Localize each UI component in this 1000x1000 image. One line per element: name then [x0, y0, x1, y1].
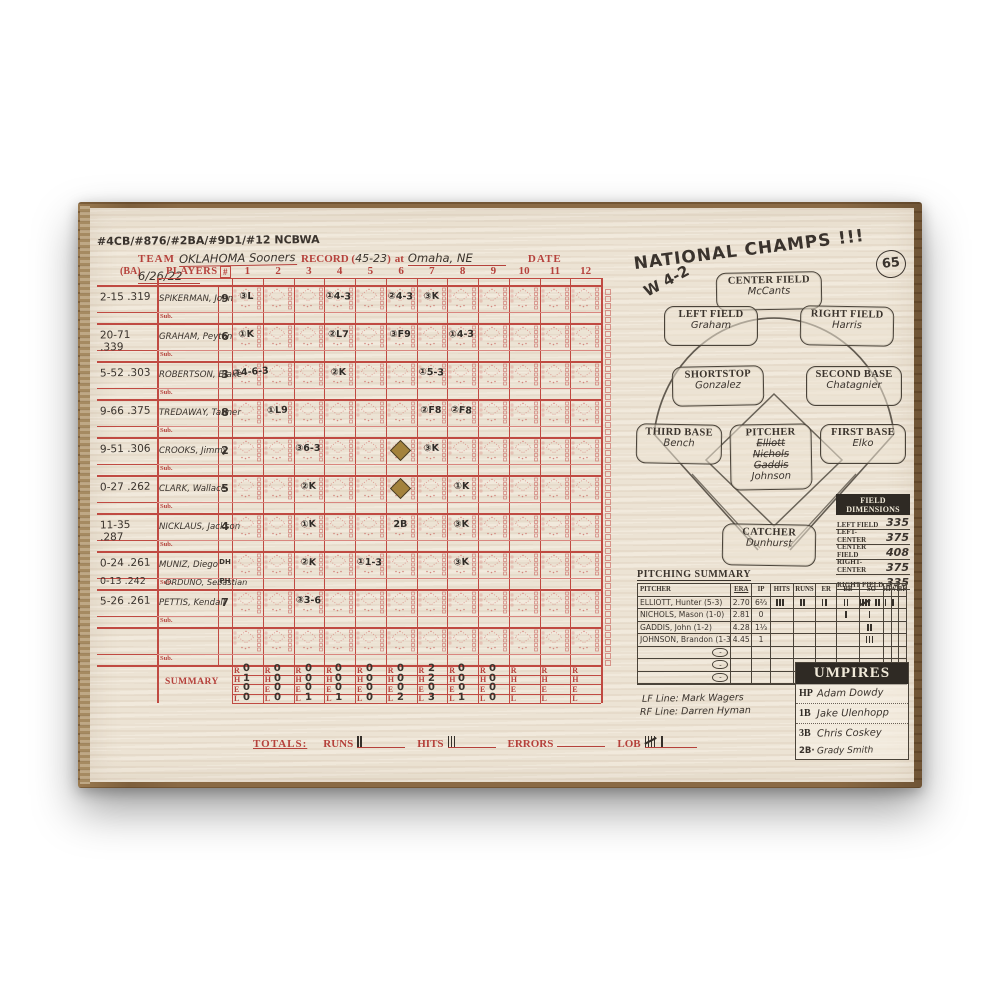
cell-diamond-pattern [418, 628, 447, 653]
inning-header: 11 [540, 265, 571, 277]
cell-diamond-pattern [479, 552, 508, 577]
edge-strip-box [605, 324, 611, 330]
edge-strip-box [605, 625, 611, 631]
position-player-name: Graham [665, 320, 757, 331]
pitching-col-header: HITS [771, 584, 794, 596]
scoring-mark: ①4-3 [325, 290, 352, 302]
inning-header: 10 [509, 265, 540, 277]
summary-letter: H [572, 675, 578, 684]
edge-strip-box [605, 541, 611, 547]
pitching-cell: ELLIOTT, Hunter (5-3) [638, 597, 731, 609]
pitching-cell [771, 597, 794, 609]
edge-strip-box [605, 401, 611, 407]
position-box-right-field: RIGHT FIELDHarris [800, 305, 895, 347]
pitching-col-header: WP [892, 584, 900, 596]
pitching-col-header: HP [884, 584, 892, 596]
location-value: Omaha, NE [408, 251, 506, 266]
pitching-row: NICHOLS, Mason (1-0)2.810 [638, 609, 906, 622]
position-label: SECOND BASE [807, 369, 901, 380]
cell-diamond-pattern [479, 362, 508, 387]
umpire-position-label: HP [799, 688, 817, 699]
cell-diamond-pattern [233, 628, 262, 653]
cell-diamond-pattern [479, 476, 508, 501]
pitching-cell [731, 672, 752, 684]
edge-strip-box [605, 562, 611, 568]
cell-diamond-pattern [541, 476, 570, 501]
pitching-header-row: PITCHERERAIPHITSRUNSERBBSOHPWPBK [638, 584, 906, 597]
pitching-col-header: IP [752, 584, 771, 596]
pitching-cell [771, 634, 794, 646]
field-dimension-rows: LEFT FIELD335LEFT-CENTER375CENTER FIELD4… [836, 515, 910, 590]
dimension-label: RIGHT-CENTER [837, 558, 886, 574]
cell-diamond-pattern [356, 286, 385, 311]
summary-letter: E [234, 685, 239, 694]
edge-strip-box [605, 422, 611, 428]
cell-diamond-pattern [571, 362, 600, 387]
edge-strip-box [605, 331, 611, 337]
edge-strip-box [605, 366, 611, 372]
umpire-name: Grady Smith [817, 746, 873, 757]
cell-diamond-pattern [325, 590, 354, 615]
grid-line [157, 654, 601, 655]
edge-strip-box [605, 296, 611, 302]
position-label: RIGHT FIELD [801, 308, 893, 321]
cell-diamond-pattern [356, 514, 385, 539]
summary-letter: L [296, 694, 301, 703]
edge-strip-box [605, 534, 611, 540]
sub-player-position: PH [218, 577, 232, 585]
umpire-position-label: 2B· [799, 746, 817, 756]
edge-strip-box [605, 415, 611, 421]
edge-strip-box [605, 597, 611, 603]
sub-label: Sub. [160, 351, 172, 358]
pitching-cell [731, 659, 752, 671]
summary-value: 0 [243, 691, 250, 702]
cell-diamond-pattern [510, 438, 539, 463]
summary-letter: E [265, 685, 270, 694]
position-box-shortstop: SHORTSTOPGonzalez [672, 365, 765, 407]
cell-diamond-pattern [418, 514, 447, 539]
edge-strip-box [605, 646, 611, 652]
cell-diamond-pattern [356, 590, 385, 615]
summary-letter: L [326, 694, 331, 703]
field-dimensions-box: FIELD DIMENSIONS LEFT FIELD335LEFT-CENTE… [836, 494, 910, 590]
pitching-cell [892, 609, 900, 621]
cell-diamond-pattern [510, 286, 539, 311]
cell-diamond-pattern [510, 514, 539, 539]
pitching-cell [752, 672, 771, 684]
scoring-mark: ①L9 [264, 405, 291, 417]
edge-strip-box [605, 359, 611, 365]
pitching-col-header: RUNS [794, 584, 817, 596]
pitching-cell [731, 647, 752, 659]
cell-diamond-pattern [264, 552, 293, 577]
edge-strip-box [605, 611, 611, 617]
pitching-cell: 4.45 [731, 634, 752, 646]
players-column-label: PLAYERS [166, 266, 218, 277]
inning-header: 3 [294, 265, 325, 277]
edge-strip-box [605, 303, 611, 309]
pitching-cell: NICHOLS, Mason (1-0) [638, 609, 731, 621]
edge-strip-box [605, 527, 611, 533]
summary-letter: H [511, 675, 517, 684]
cell-diamond-pattern [541, 514, 570, 539]
cell-diamond-pattern [325, 628, 354, 653]
grid-line [97, 388, 157, 389]
rf-line-umpire: RF Line: Darren Hyman [640, 705, 751, 718]
scoring-mark: ②F8 [448, 404, 475, 417]
summary-letter: H [388, 675, 394, 684]
pitching-cell [892, 634, 900, 646]
cell-diamond-pattern [448, 628, 477, 653]
cell-diamond-pattern [387, 400, 416, 425]
runs-tally [357, 734, 405, 748]
inning-header: 1 [232, 265, 263, 277]
cell-diamond-pattern [295, 286, 324, 311]
inning-header: 4 [324, 265, 355, 277]
player-ba: 20-71 .339 [100, 329, 154, 354]
cell-diamond-pattern [264, 590, 293, 615]
player-name: CROOKS, Jimmy [159, 446, 217, 456]
summary-letter: R [326, 666, 332, 675]
pitching-cell: - [638, 647, 731, 659]
summary-letter: L [572, 694, 577, 703]
cell-diamond-pattern [571, 628, 600, 653]
record-value: 45-23 [355, 252, 387, 265]
summary-letter: R [419, 666, 425, 675]
cell-diamond-pattern [510, 628, 539, 653]
scoring-mark: ②K [325, 367, 352, 378]
grid-line [157, 278, 601, 279]
cell-diamond-pattern [571, 590, 600, 615]
player-name: GRAHAM, Peyton [159, 332, 217, 342]
date-label: DATE [528, 253, 562, 265]
cell-diamond-pattern [264, 286, 293, 311]
edge-strip-box [605, 429, 611, 435]
position-box-third-base: THIRD BASEBench [636, 423, 723, 464]
summary-letter: R [542, 666, 548, 675]
cell-diamond-pattern [571, 552, 600, 577]
player-ba: 11-35 .287 [100, 519, 154, 544]
pitching-cell [771, 622, 794, 634]
edge-strip-box [605, 639, 611, 645]
grid-line [97, 426, 157, 427]
scoring-mark: 2B [387, 519, 414, 530]
scoring-mark: ①4-3 [448, 329, 475, 340]
cell-diamond-pattern [356, 476, 385, 501]
edge-strip-box [605, 576, 611, 582]
summary-value: 2 [397, 691, 404, 702]
sub-label: Sub. [160, 427, 172, 434]
cell-diamond-pattern [387, 628, 416, 653]
sub-label: Sub. [160, 617, 172, 624]
player-ba: 5-26 .261 [100, 595, 154, 608]
edge-strip-box [605, 443, 611, 449]
grid-line [157, 464, 601, 465]
edge-strip-box [605, 394, 611, 400]
player-ba: 9-66 .375 [100, 405, 154, 418]
cell-diamond-pattern [541, 286, 570, 311]
pitching-cell [816, 597, 837, 609]
player-name: PETTIS, Kendall [159, 598, 217, 608]
position-label: FIRST BASE [821, 427, 905, 438]
edge-strip-box [605, 352, 611, 358]
dimension-label: LEFT-CENTER [837, 528, 886, 544]
player-ba: 0-24 .261 [100, 557, 154, 570]
position-box-catcher: CATCHERDunhurst [722, 523, 817, 567]
grid-line [601, 278, 603, 703]
edge-strip-box [605, 478, 611, 484]
runs-label: RUNS [323, 738, 353, 750]
record-label: RECORD ( [301, 253, 355, 265]
pos-column-label: # [220, 266, 231, 278]
edge-strip-box [605, 590, 611, 596]
pitching-cell: - [638, 672, 731, 684]
dimension-label: CENTER FIELD [837, 543, 886, 559]
grid-line [157, 388, 601, 389]
pitching-cell [771, 659, 794, 671]
cell-diamond-pattern [295, 324, 324, 349]
summary-letter: H [357, 675, 363, 684]
scoring-mark: ③K [417, 290, 444, 302]
pitching-cell: GADDIS, John (1-2) [638, 622, 731, 634]
pitching-row: GADDIS, John (1-2)4.281⅓ [638, 622, 906, 635]
pitching-cell [892, 597, 900, 609]
edge-strip-box [605, 583, 611, 589]
pitching-cell: 1⅓ [752, 622, 771, 634]
cell-diamond-pattern [295, 400, 324, 425]
umpire-name: Chris Coskey [817, 727, 882, 739]
cell-diamond-pattern [479, 628, 508, 653]
cell-diamond-pattern [233, 438, 262, 463]
cell-diamond-pattern [541, 324, 570, 349]
cell-diamond-pattern [418, 552, 447, 577]
summary-letter: R [265, 666, 271, 675]
summary-letter: E [542, 685, 547, 694]
pitching-col-header: ER [816, 584, 837, 596]
edge-strip-box [605, 457, 611, 463]
cell-diamond-pattern [233, 476, 262, 501]
lf-line-umpire: LF Line: Mark Wagers [642, 692, 744, 705]
cell-diamond-pattern [510, 324, 539, 349]
edge-strip-box [605, 555, 611, 561]
position-label: THIRD BASE [637, 426, 721, 438]
pitching-cell [837, 597, 860, 609]
cell-diamond-pattern [418, 324, 447, 349]
cell-diamond-pattern [541, 590, 570, 615]
cell-diamond-pattern [356, 628, 385, 653]
pitching-cell [899, 622, 906, 634]
cell-diamond-pattern [325, 400, 354, 425]
edge-strip-box [605, 345, 611, 351]
cell-diamond-pattern [448, 590, 477, 615]
summary-letter: E [449, 685, 454, 694]
scoring-mark: ②F8 [418, 405, 445, 416]
player-position: 5 [218, 482, 232, 495]
grid-line [157, 540, 601, 541]
cell-diamond-pattern [510, 476, 539, 501]
sub-label: Sub. [160, 389, 172, 396]
cell-diamond-pattern [510, 362, 539, 387]
scoring-mark: ②K [294, 481, 321, 493]
sub-label: Sub. [160, 503, 172, 510]
errors-label: ERRORS [508, 738, 554, 750]
cell-diamond-pattern [510, 400, 539, 425]
edge-strip-box [605, 548, 611, 554]
grid-line [157, 426, 601, 427]
summary-letter: L [419, 694, 424, 703]
sub-label: Sub. [160, 541, 172, 548]
position-player-name: McCants [717, 285, 821, 298]
position-player-name: Elko [821, 438, 905, 449]
pitching-col-header: SO [860, 584, 885, 596]
pitching-row: - [638, 647, 906, 660]
grid-line [97, 464, 157, 465]
cell-diamond-pattern [264, 476, 293, 501]
field-dimension-row: RIGHT-CENTER375 [836, 560, 910, 575]
grid-line [157, 502, 601, 503]
edge-strip-box [605, 506, 611, 512]
cell-diamond-pattern [418, 476, 447, 501]
cell-diamond-pattern [295, 362, 324, 387]
cell-diamond-pattern [264, 438, 293, 463]
pitching-cell: 2.70 [731, 597, 752, 609]
scoring-mark: ③3-6 [294, 595, 321, 606]
summary-letter: H [265, 675, 271, 684]
umpires-box: UMPIRES HPAdam Dowdy1BJake Ulenhopp3BChr… [795, 662, 909, 760]
cell-diamond-pattern [541, 552, 570, 577]
cell-diamond-pattern [479, 514, 508, 539]
pitching-cell [816, 634, 837, 646]
edge-strip-box [605, 569, 611, 575]
player-ba: 9-51 .306 [100, 443, 154, 456]
dimension-value: 335 [886, 516, 909, 529]
summary-letter: H [449, 675, 455, 684]
summary-letter: E [480, 685, 485, 694]
player-position: DH [218, 558, 232, 566]
pitching-cell [860, 634, 885, 646]
cell-diamond-pattern [356, 438, 385, 463]
scoring-mark: ②K [294, 556, 321, 568]
summary-letter: H [419, 675, 425, 684]
cell-diamond-pattern [479, 324, 508, 349]
cell-diamond-pattern [264, 324, 293, 349]
edge-strip-box [605, 653, 611, 659]
edge-strip-box [605, 289, 611, 295]
scoring-mark: ③F9 [387, 329, 414, 340]
pitching-cell [892, 622, 900, 634]
grid-line [97, 665, 601, 667]
pitching-cell [816, 609, 837, 621]
grid-line [97, 616, 157, 617]
cell-diamond-pattern [264, 514, 293, 539]
pitching-cell [794, 597, 817, 609]
cell-diamond-pattern [325, 514, 354, 539]
pitching-cell: 0 [752, 609, 771, 621]
edge-strip-box [605, 513, 611, 519]
errors-tally [557, 733, 605, 747]
summary-letter: R [388, 666, 394, 675]
dimension-value: 375 [886, 531, 909, 544]
scoring-mark: ①5-3 [417, 367, 444, 379]
edge-strip-box [605, 317, 611, 323]
pitching-row: JOHNSON, Brandon (1-3)4.451 [638, 634, 906, 647]
umpire-position-label: 1B [799, 708, 817, 719]
summary-letter: R [449, 666, 455, 675]
edge-strip-box [605, 338, 611, 344]
pitching-cell [771, 609, 794, 621]
pitching-cell: 4.28 [731, 622, 752, 634]
pitching-cell [884, 622, 892, 634]
position-player-name: Bench [637, 437, 721, 449]
pitching-cell: 1 [752, 634, 771, 646]
cell-diamond-pattern [571, 286, 600, 311]
pitching-cell: - [638, 659, 731, 671]
cell-diamond-pattern [479, 438, 508, 463]
cell-diamond-pattern [418, 590, 447, 615]
pitching-cell [837, 647, 860, 659]
cell-diamond-pattern [541, 438, 570, 463]
pitching-cell [899, 634, 906, 646]
record-oval: - [712, 673, 728, 682]
summary-value: 0 [366, 691, 374, 702]
totals-label: TOTALS: [253, 738, 307, 750]
umpire-name: Jake Ulenhopp [817, 707, 889, 719]
player-ba: 0-27 .262 [100, 481, 154, 494]
grid-line [157, 616, 601, 617]
pitching-col-header: PITCHER [638, 584, 731, 596]
grid-line [232, 703, 601, 704]
edge-strip-box [605, 499, 611, 505]
pitching-cell [884, 597, 892, 609]
summary-letter: L [234, 694, 239, 703]
memorabilia-line: #4CB/#876/#2BA/#9D1/#12 NCBWA [97, 233, 320, 248]
pitching-cell [794, 647, 817, 659]
cell-diamond-pattern [448, 286, 477, 311]
summary-letter: H [296, 675, 302, 684]
scoring-mark: ②4-3 [387, 291, 414, 303]
hits-label: HITS [417, 738, 443, 750]
pitching-cell [752, 647, 771, 659]
cell-diamond-pattern [233, 590, 262, 615]
summary-letter: R [511, 666, 517, 675]
inning-header: 2 [263, 265, 294, 277]
summary-value: 3 [427, 691, 434, 702]
record-oval: - [712, 648, 728, 657]
cell-diamond-pattern [233, 514, 262, 539]
pitching-col-header: BB [837, 584, 860, 596]
cell-diamond-pattern [448, 362, 477, 387]
player-ba: 2-15 .319 [100, 291, 154, 304]
pitching-cell [884, 609, 892, 621]
player-ba: 5-52 .303 [100, 367, 154, 380]
umpire-name: Adam Dowdy [817, 687, 884, 699]
player-position: 2 [218, 444, 232, 457]
summary-letter: R [234, 666, 240, 675]
cell-diamond-pattern [571, 476, 600, 501]
team-label: TEAM [138, 253, 175, 265]
pitching-cell [884, 634, 892, 646]
summary-letter: R [296, 666, 302, 675]
dimension-value: 375 [886, 561, 909, 574]
grid-line [97, 654, 157, 655]
sub-label: Sub. [160, 313, 172, 320]
pitching-cell [816, 647, 837, 659]
edge-strip-box [605, 604, 611, 610]
summary-letter: R [357, 666, 363, 675]
position-player-name: Gonzalez [673, 379, 763, 392]
pitching-cell [884, 647, 892, 659]
